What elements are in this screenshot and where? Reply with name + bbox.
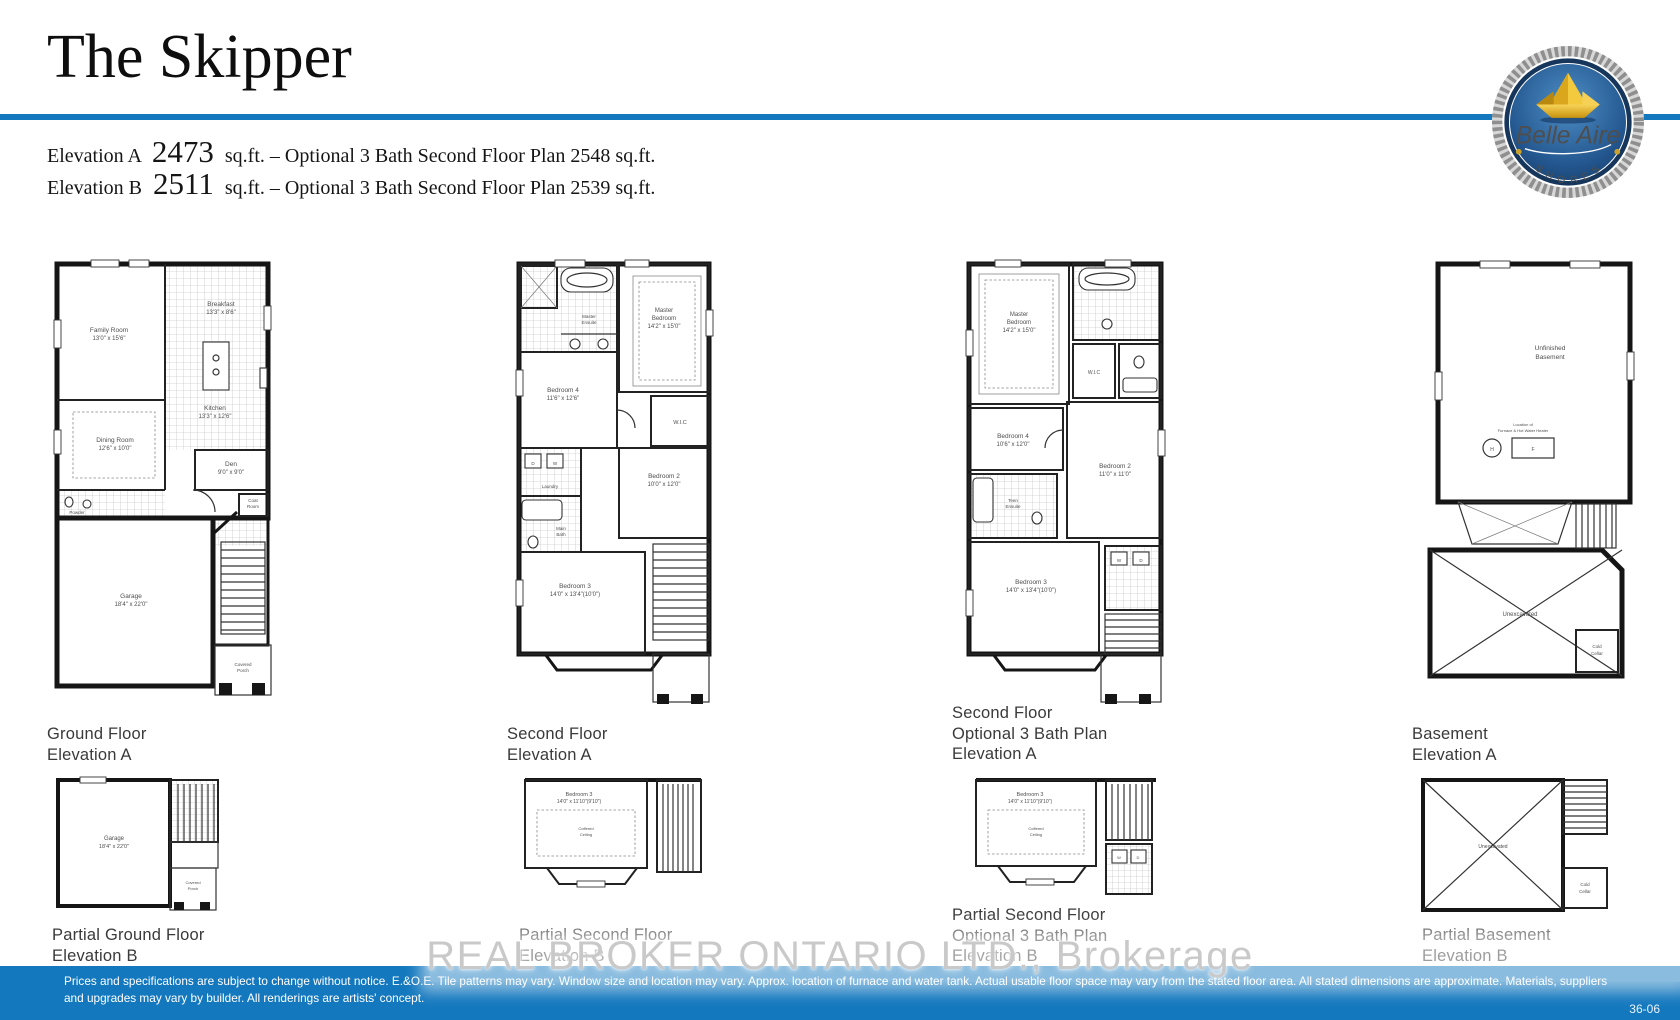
room-label: Teen	[1008, 498, 1018, 503]
floorplan-basement-a: Unfinished Basement Location of Furnace …	[1420, 252, 1645, 690]
caption-line: Second Floor	[507, 724, 608, 745]
room-dims: 11'0" x 11'0"	[1099, 472, 1131, 478]
caption-line: Ground Floor	[47, 724, 147, 745]
floorplan-partial-ground-b: Garage 18'4" x 22'0" Covered Porch	[50, 772, 228, 918]
room-dims: 14'0" x 11'10"(9'10")	[557, 799, 602, 805]
room-label: Bedroom 3	[566, 792, 593, 798]
brochure-page: { "header": { "title": "The Skipper", "e…	[0, 0, 1680, 1020]
caption-line: Elevation A	[507, 745, 608, 766]
elevation-a-rest: sq.ft. – Optional 3 Bath Second Floor Pl…	[225, 145, 656, 167]
room-label: Bedroom 4	[547, 387, 579, 394]
room-dims: 10'6" x 12'0"	[997, 442, 1030, 448]
room-dims: 14'2" x 15'0"	[648, 324, 681, 330]
room-dims: 11'6" x 12'6"	[547, 396, 579, 402]
walls	[525, 780, 701, 884]
room-label: Garage	[120, 593, 142, 600]
room-dims: 10'0" x 12'0"	[648, 482, 681, 488]
room-dims: 14'0" x 13'4"(10'0")	[550, 592, 600, 598]
room-label: Bath	[556, 532, 566, 537]
room-label: Dining Room	[96, 437, 134, 444]
room-label: Ensuite	[581, 320, 597, 325]
room-dims: 14'0" x 11'10"(9'10")	[1008, 799, 1053, 805]
floorplan-partial-second-b: Bedroom 3 14'0" x 11'10"(9'10") Coffered…	[517, 770, 709, 918]
floorplan-ground-floor-a: Family Room 13'0" x 15'6" Breakfast 13'3…	[43, 250, 280, 712]
room-dims: 13'0" x 15'6"	[93, 336, 126, 342]
caption-line: Elevation A	[952, 744, 1107, 765]
caption-line: Elevation A	[1412, 745, 1497, 766]
header-divider-rule	[0, 114, 1680, 120]
room-dims: 9'0" x 9'0"	[218, 470, 244, 476]
annotation: Ceiling	[1030, 832, 1042, 837]
room-dims: 14'2" x 15'0"	[1003, 328, 1036, 334]
elevation-b-rest: sq.ft. – Optional 3 Bath Second Floor Pl…	[225, 177, 656, 199]
room-label: Bedroom 3	[1017, 792, 1044, 798]
room-label: W.I.C	[673, 420, 686, 426]
room-label: Cellar	[1591, 651, 1603, 656]
room-label: Den	[225, 461, 237, 468]
room-label: Breakfast	[207, 301, 235, 308]
elevation-a-label: Elevation A	[47, 145, 141, 167]
room-label: Garage	[104, 836, 125, 842]
room-label: Master	[655, 308, 673, 314]
room-label: Porch	[188, 886, 198, 891]
room-label: W.I.C	[1088, 370, 1101, 376]
room-label: Unexcavated	[1478, 844, 1507, 850]
page-title: The Skipper	[47, 26, 352, 88]
caption-line: Elevation A	[47, 745, 147, 766]
room-dims: 13'3" x 12'6"	[199, 414, 232, 420]
room-label: Porch	[237, 668, 249, 673]
room-label: Bedroom 3	[1015, 579, 1047, 586]
caption-line: Partial Second Floor	[952, 905, 1107, 926]
floorplan-partial-basement-b: Unexcavated Cold Cellar	[1415, 772, 1615, 918]
elevation-b-specs: Elevation B 2511 sq.ft. – Optional 3 Bat…	[47, 166, 655, 202]
room-dims: 12'6" x 10'0"	[99, 446, 132, 452]
room-label: Unfinished	[1535, 345, 1566, 352]
caption-line: Basement	[1412, 724, 1497, 745]
room-label: Powder	[69, 510, 85, 515]
caption-line: Optional 3 Bath Plan	[952, 724, 1107, 745]
caption-second-floor-a: Second Floor Elevation A	[507, 724, 608, 765]
elevation-a-specs: Elevation A 2473 sq.ft. – Optional 3 Bat…	[47, 134, 655, 170]
tiled-area	[170, 780, 218, 842]
room-label: Bedroom 2	[648, 473, 680, 480]
room-label: Room	[247, 504, 259, 509]
room-dims: 18'4" x 22'0"	[99, 844, 129, 850]
room-label: Family Room	[90, 327, 128, 334]
floorplan-second-floor-3bath-a: Master Bedroom 14'2" x 15'0" W.I.C Bedro…	[955, 250, 1175, 712]
elevation-b-label: Elevation B	[47, 177, 142, 199]
appliance-label: H	[1490, 447, 1494, 453]
room-label: Bedroom	[1007, 320, 1031, 326]
room-label: Main	[556, 526, 566, 531]
room-label: Kitchen	[204, 405, 226, 412]
room-dims: 18'4" x 22'0"	[115, 602, 148, 608]
room-label: Basement	[1535, 354, 1564, 361]
elevation-a-sqft: 2473	[152, 134, 214, 169]
room-labels: Bedroom 3 14'0" x 11'10"(9'10") Coffered…	[557, 792, 602, 837]
room-label: Bedroom 3	[559, 583, 591, 590]
logo-brand-text: Belle Aire	[1516, 123, 1620, 150]
room-label: Bedroom 4	[997, 433, 1029, 440]
room-label: Covered	[234, 662, 252, 667]
room-label: Cold	[1592, 644, 1602, 649]
room-dims: 14'0" x 13'4"(10'0")	[1006, 588, 1056, 594]
room-labels: Garage 18'4" x 22'0" Covered Porch	[99, 836, 201, 891]
room-label: Cellar	[1579, 889, 1591, 894]
annotation: Ceiling	[580, 832, 592, 837]
room-label: Coat	[248, 498, 258, 503]
annotation: Coffered	[1028, 826, 1043, 831]
caption-ground-floor-a: Ground Floor Elevation A	[47, 724, 147, 765]
room-dims: 13'3" x 8'6"	[206, 310, 236, 316]
disclaimer-line: and upgrades may vary by builder. All re…	[64, 990, 1624, 1007]
room-label: Unexcavated	[1502, 612, 1537, 618]
appliance-label: D	[1137, 855, 1140, 860]
caption-basement-a: Basement Elevation A	[1412, 724, 1497, 765]
annotation: Coffered	[578, 826, 593, 831]
annotation: Location of	[1513, 422, 1533, 427]
room-label: Bedroom 2	[1099, 463, 1131, 470]
belle-aire-shores-logo: Belle Aire S H O R E S	[1490, 44, 1646, 200]
caption-line: Second Floor	[952, 703, 1107, 724]
caption-second-floor-3bath-a: Second Floor Optional 3 Bath Plan Elevat…	[952, 703, 1107, 765]
room-label: Ensuite	[1005, 504, 1021, 509]
brokerage-watermark: REAL BROKER ONTARIO LTD., Brokerage	[0, 934, 1680, 979]
room-label: Laundry	[542, 484, 559, 489]
appliance-label: F	[1531, 447, 1534, 453]
room-label: Cold	[1580, 882, 1590, 887]
annotation: Furnace & Hot Water Heater	[1498, 428, 1549, 433]
room-label: Bedroom	[652, 316, 676, 322]
floorplan-partial-second-3bath-b: Bedroom 3 14'0" x 11'10"(9'10") Coffered…	[968, 768, 1164, 920]
appliance-label: W	[1117, 855, 1121, 860]
room-label: Covered	[185, 880, 200, 885]
page-number: 36-06	[1629, 1002, 1660, 1016]
room-label: Master	[582, 314, 596, 319]
room-label: Master	[1010, 312, 1028, 318]
floorplan-second-floor-a: Master Ensuite Master Bedroom 14'2" x 15…	[505, 250, 723, 712]
elevation-b-sqft: 2511	[153, 166, 214, 201]
